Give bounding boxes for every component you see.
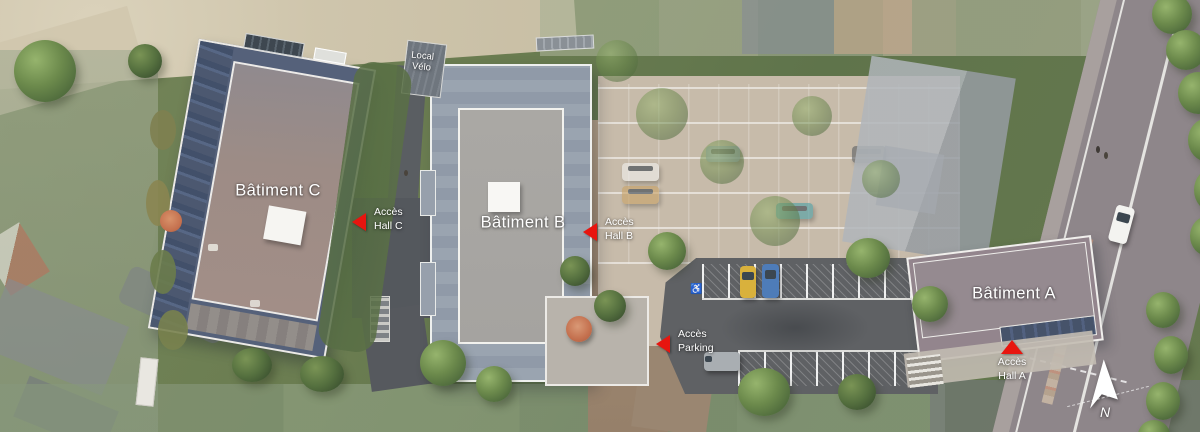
access-line1: Accès: [678, 328, 714, 342]
street-hedge: [1146, 382, 1180, 420]
bush: [158, 310, 188, 350]
car-yellow: [740, 266, 756, 298]
access-line1: Accès: [605, 216, 634, 230]
tree: [838, 374, 876, 410]
tree: [912, 286, 948, 322]
red-arrow-up-icon: [1001, 340, 1023, 354]
picnic-table: [208, 244, 218, 251]
access-line2: Hall C: [374, 220, 403, 234]
tree-faded: [792, 96, 832, 136]
tree-faded: [750, 196, 800, 246]
car-tan: [622, 186, 659, 204]
handicap-icon: ♿: [690, 284, 702, 295]
tree: [594, 290, 626, 322]
steps-a: [906, 354, 943, 388]
tree: [476, 366, 512, 402]
tree-faded: [862, 160, 900, 198]
access-hall-c-label: Accès Hall C: [374, 206, 403, 233]
site-plan: ♿: [0, 0, 1200, 432]
umbrella-terracotta: [566, 316, 592, 342]
bush: [150, 110, 176, 150]
compass: N: [1078, 356, 1142, 426]
picnic-table: [250, 300, 260, 307]
car-blue: [762, 264, 779, 298]
compass-label: N: [1100, 404, 1110, 420]
building-c-skylight: [263, 205, 306, 245]
red-arrow-left-icon: [352, 213, 366, 231]
building-b-skylight: [488, 182, 520, 212]
building-b-balcony-1: [420, 170, 436, 216]
tree: [420, 340, 466, 386]
neighbour-roof-grey: [742, 0, 834, 54]
access-line1: Accès: [990, 356, 1034, 370]
umbrella-garden: [160, 210, 182, 232]
building-a-label[interactable]: Bâtiment A: [972, 285, 1056, 304]
neighbour-roof-tan: [834, 0, 912, 54]
car-white: [622, 163, 659, 181]
local-velo-label: Local Vélo: [410, 49, 435, 74]
access-line2: Parking: [678, 342, 714, 356]
bush: [150, 250, 176, 294]
access-line2: Hall A: [990, 370, 1034, 384]
red-arrow-left-icon: [583, 223, 597, 241]
pedestrian: [404, 170, 408, 176]
tree: [14, 40, 76, 102]
access-hall-b-label: Accès Hall B: [605, 216, 634, 243]
tree-faded: [700, 140, 744, 184]
street-hedge: [1166, 30, 1200, 70]
tree: [560, 256, 590, 286]
tree: [232, 348, 272, 382]
access-parking-label: Accès Parking: [678, 328, 714, 355]
pedestrian: [1096, 146, 1100, 153]
building-c-label[interactable]: Bâtiment C: [235, 182, 321, 201]
tree: [738, 368, 790, 416]
street-hedge: [1154, 336, 1188, 374]
tree: [846, 238, 890, 278]
access-line2: Hall B: [605, 230, 634, 244]
red-arrow-left-icon: [656, 335, 670, 353]
tree: [648, 232, 686, 270]
tree: [300, 356, 344, 392]
building-b-balcony-2: [420, 262, 436, 316]
tree: [128, 44, 162, 78]
tree-faded: [596, 40, 638, 82]
resident-parking-area: ♿: [660, 258, 938, 394]
access-hall-a-label: Accès Hall A: [990, 356, 1034, 383]
tree-faded: [636, 88, 688, 140]
street-hedge: [1146, 292, 1180, 328]
building-b-label[interactable]: Bâtiment B: [481, 214, 566, 233]
parking-shadow: [720, 298, 870, 358]
local-velo-line2: Vélo: [410, 61, 434, 75]
access-line1: Accès: [374, 206, 403, 220]
pedestrian: [1104, 152, 1108, 159]
